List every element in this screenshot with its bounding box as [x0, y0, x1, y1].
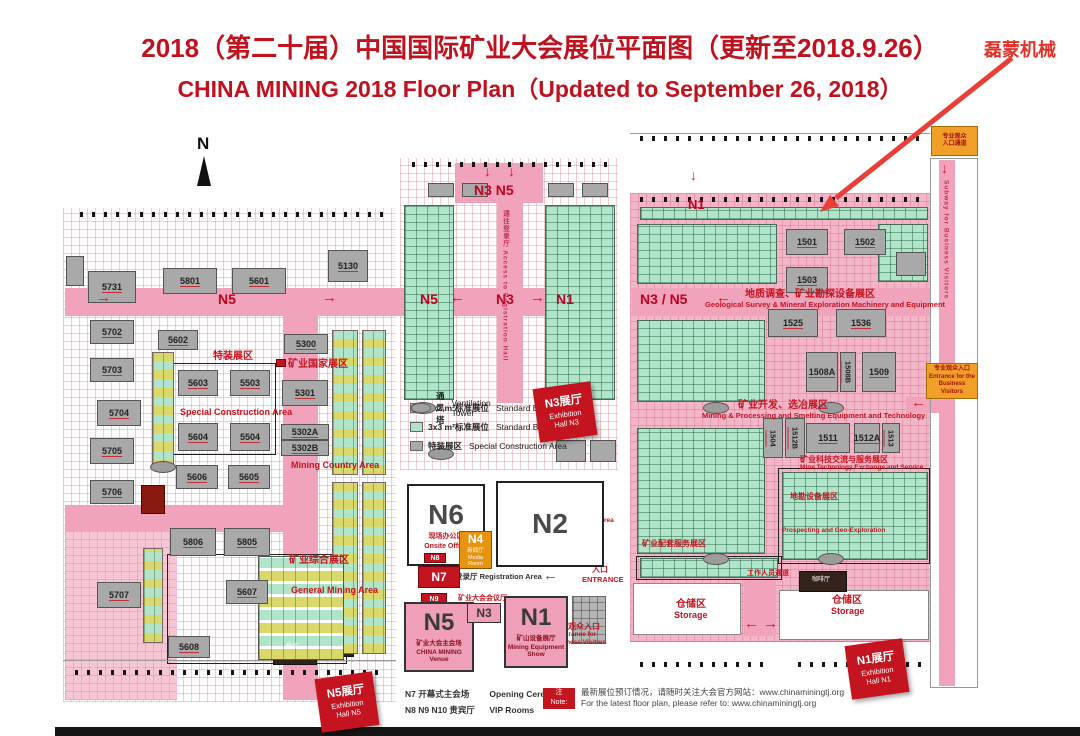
booth[interactable]: 1511 [806, 423, 850, 453]
hall-badge: N3展厅 Exhibition Hall N3 [533, 381, 598, 443]
booth[interactable]: 1508B [840, 352, 856, 392]
entrance-line3: Business Visitors [927, 381, 977, 396]
booth[interactable]: 5608 [168, 636, 210, 658]
map-label: Special Construction Area [180, 408, 292, 417]
map-region [75, 670, 385, 675]
footer-n8-zh: N8 N9 N10 贵宾厅 [405, 704, 487, 716]
map-label: 咖啡厅 [812, 577, 830, 583]
note-badge-zh: 注 [543, 688, 575, 698]
map-region [276, 359, 286, 367]
booth-cluster[interactable] [152, 352, 174, 470]
booth[interactable]: 5707 [97, 582, 141, 608]
booth[interactable]: 1525 [768, 309, 818, 337]
entrance-box: 专业观众 入口通道 [931, 126, 978, 156]
map-region [141, 485, 165, 514]
map-label: ← [450, 290, 465, 305]
page-title-en: CHINA MINING 2018 Floor Plan（Updated to … [60, 70, 1020, 104]
ventilation-tower [150, 461, 176, 473]
booth[interactable]: 1501 [786, 229, 828, 255]
building[interactable]: N1 矿山设备展厅 Mining Equipment Show [504, 596, 568, 668]
building-id: N7 [431, 571, 446, 583]
building-id: N3 [476, 607, 491, 619]
map-region [80, 212, 385, 217]
building-sub-zh: 矿山设备展厅 [517, 632, 556, 642]
building-sub-zh: 矿业大会主会场 [416, 637, 462, 647]
entrance-line2: 入口通道 [942, 141, 966, 149]
booth[interactable] [896, 252, 926, 276]
map-label: ← [543, 568, 558, 583]
map-region [630, 133, 930, 134]
booth[interactable]: 1509 [862, 352, 896, 392]
booth[interactable] [66, 256, 84, 286]
booth[interactable]: 5601 [232, 268, 286, 294]
map-label: 矿业国家展区 [288, 360, 348, 370]
page-title-zh: 2018（第二十届）中国国际矿业大会展位平面图（更新至2018.9.26） [60, 28, 1020, 65]
booth[interactable]: 5706 [90, 480, 134, 504]
booth[interactable]: 5605 [228, 465, 270, 489]
entrance-line1: 专业观众入口 [934, 366, 970, 374]
booth[interactable]: 5603 [178, 370, 218, 396]
booth[interactable]: 5703 [90, 358, 134, 382]
map-label: 地质调查、矿业勘探设备展区 [745, 290, 875, 300]
hall-badge: N5展厅 Exhibition Hall N5 [315, 671, 380, 733]
compass-label: N [197, 134, 209, 154]
booth[interactable]: 1502 [844, 229, 886, 255]
booth[interactable]: 1512A [854, 423, 880, 453]
map-label: N1 [688, 198, 705, 211]
note-text: 最新展位预订情况，请随时关注大会官方网站：www.chinaminingtj.o… [581, 687, 844, 710]
entrance-box: 专业观众入口 Entrance for the Business Visitor… [926, 363, 978, 399]
map-label: 餐厅 [286, 644, 298, 650]
booth[interactable]: 5801 [163, 268, 217, 294]
booth[interactable]: 5602 [158, 330, 198, 350]
compass-needle-icon [197, 156, 211, 186]
map-label: 入口 [592, 566, 608, 574]
building-id: N8 [431, 555, 440, 562]
map-label: Prospecting and Geo-Exploration [782, 528, 885, 535]
booth-cluster[interactable] [362, 482, 386, 654]
booth-cluster[interactable] [332, 330, 358, 475]
booth-cluster[interactable] [640, 207, 928, 220]
ventilation-tower [703, 553, 729, 565]
ventilation-tower [818, 553, 844, 565]
legend-label-zh: 通风塔 [436, 390, 445, 426]
legend-swatch [410, 441, 423, 451]
company-annotation-label: 磊蒙机械 [984, 36, 1056, 62]
booth-cluster[interactable] [637, 428, 765, 554]
map-label: ↓ [941, 161, 948, 175]
booth[interactable]: 5302B [281, 440, 329, 456]
map-label: 矿业科技交流与服务展区 [800, 456, 888, 464]
booth[interactable] [590, 440, 616, 462]
map-label: Mining & Processing and Smelting Equipme… [702, 412, 925, 420]
booth-cluster[interactable] [258, 556, 344, 660]
map-label: 矿业开发、选冶展区 [738, 401, 828, 411]
booth[interactable]: 5504 [230, 423, 270, 451]
hall-badge: N1展厅 Exhibition Hall N1 [845, 638, 910, 700]
booth[interactable]: 5302A [281, 424, 329, 440]
bottom-bar [55, 727, 1080, 736]
building-sub-zh: 新闻厅 [467, 546, 484, 554]
note-text-en: For the latest floor plan, please refer … [581, 698, 844, 709]
map-label: 特装展区 [213, 352, 253, 362]
map-label: Mining Country Area [291, 461, 379, 470]
map-label: 矿业综合展区 [289, 556, 349, 566]
map-label: Storage [831, 607, 865, 616]
map-label: ↓ [690, 168, 697, 182]
building[interactable]: N3 [467, 603, 501, 623]
booth[interactable]: 5805 [224, 528, 270, 556]
building-id: N5 [424, 611, 455, 635]
entrance-line2: Entrance for the [929, 374, 975, 382]
hall-badge-sub2: Hall N5 [336, 707, 362, 719]
booth[interactable]: 5705 [90, 438, 134, 464]
map-region [640, 197, 920, 202]
map-label: Geological Survey & Mineral Exploration … [705, 301, 945, 309]
map-label: 矿业配套服务展区 [642, 540, 706, 548]
booth[interactable]: 5606 [176, 465, 218, 489]
booth[interactable]: 5503 [230, 370, 270, 396]
building-id: N2 [532, 510, 568, 538]
building[interactable]: N7 [418, 566, 460, 588]
map-label: ↓ [508, 164, 515, 178]
map-label: Subway for Business Visitors [942, 180, 949, 350]
building-sub-en: Media Room [460, 555, 491, 567]
map-region [640, 136, 925, 141]
map-label: → [322, 290, 337, 305]
note-text-zh: 最新展位预订情况，请随时关注大会官方网站：www.chinaminingtj.o… [581, 687, 844, 698]
floor-plan-canvas: 2018（第二十届）中国国际矿业大会展位平面图（更新至2018.9.26） CH… [0, 0, 1080, 736]
footer-n7-zh: N7 开幕式主会场 [405, 688, 487, 700]
booth[interactable] [582, 183, 608, 197]
booth[interactable]: 5301 [282, 380, 328, 406]
booth[interactable]: 1513 [882, 423, 900, 453]
booth[interactable]: 1504 [763, 418, 783, 458]
legend-item: 通风塔 Ventilation Tower [410, 402, 436, 414]
building[interactable]: N5 矿业大会主会场 CHINA MINING Venue [404, 602, 474, 672]
building-id: N1 [521, 606, 552, 630]
booth[interactable]: 5704 [97, 400, 141, 426]
map-label: → [530, 290, 545, 305]
legend-swatch [410, 422, 423, 432]
map-label: ENTRANCE [582, 576, 624, 584]
building[interactable]: N8 [424, 553, 446, 563]
map-label: Mine Technology Exchange and Service [800, 465, 923, 472]
map-label: 地勘设备展区 [790, 493, 838, 501]
map-label: 工作人员通道 [747, 570, 789, 577]
booth-cluster[interactable] [637, 224, 777, 284]
map-label: N3 / N5 [640, 292, 687, 306]
map-label: 矿业大会会议厅 [458, 595, 507, 602]
map-label: N5 [420, 292, 438, 306]
map-label: → [96, 290, 111, 305]
building[interactable]: N4 新闻厅 Media Room [459, 531, 492, 569]
map-label: ↓ [484, 164, 491, 178]
map-label: General Mining Area [291, 586, 378, 595]
legend-label-en: Ventilation Tower [452, 398, 491, 418]
legend-label-en: Special Construction Area [469, 441, 567, 451]
map-label: 仓储区 [832, 596, 862, 606]
booth[interactable]: 5130 [328, 250, 368, 282]
entrance-line1: 专业观众 [942, 134, 966, 142]
map-region [63, 660, 396, 661]
note-badge: 注 Note: [543, 688, 575, 709]
map-label: 仓储区 [676, 600, 706, 610]
booth[interactable]: 5300 [284, 334, 328, 354]
booth[interactable]: 5806 [170, 528, 216, 556]
map-region [930, 158, 978, 688]
booth[interactable]: 1508A [806, 352, 838, 392]
map-label: 通往登录厅 Access to Registration Hall [501, 210, 508, 390]
building-id: N4 [468, 533, 483, 545]
booth-cluster[interactable] [143, 548, 163, 643]
booth[interactable]: 5607 [226, 580, 268, 604]
legend-swatch [411, 403, 431, 413]
map-label: N1 [556, 292, 574, 306]
map-region [640, 662, 770, 667]
hall-badge-sub2: Hall N3 [554, 417, 580, 429]
building[interactable]: N2 [496, 481, 604, 567]
legend-label-zh: 特装展区 [428, 440, 462, 452]
booth[interactable]: 1536 [836, 309, 886, 337]
map-label: ← [911, 395, 926, 410]
building-sub-en: CHINA MINING Venue [406, 649, 472, 663]
note-badge-en: Note: [543, 698, 575, 708]
booth-cluster[interactable] [362, 330, 386, 475]
booth[interactable]: 1512B [785, 418, 805, 458]
map-label: 登录厅 Registration Area [455, 573, 542, 581]
booth[interactable]: 5604 [178, 423, 218, 451]
building-id: N6 [428, 501, 464, 529]
booth[interactable] [428, 183, 454, 197]
map-label: N3 N5 [474, 183, 514, 197]
footer-n8-en: VIP Rooms [489, 705, 534, 715]
booth[interactable]: 5702 [90, 320, 134, 344]
building-sub-en: Mining Equipment Show [506, 644, 566, 658]
booth-cluster[interactable] [637, 320, 765, 402]
map-label: Storage [674, 611, 708, 620]
map-label: N5 [218, 292, 236, 306]
booth-cluster[interactable] [782, 472, 928, 560]
booth[interactable] [548, 183, 574, 197]
map-label: ← → [744, 616, 778, 631]
hall-badge-sub2: Hall N1 [866, 674, 892, 686]
